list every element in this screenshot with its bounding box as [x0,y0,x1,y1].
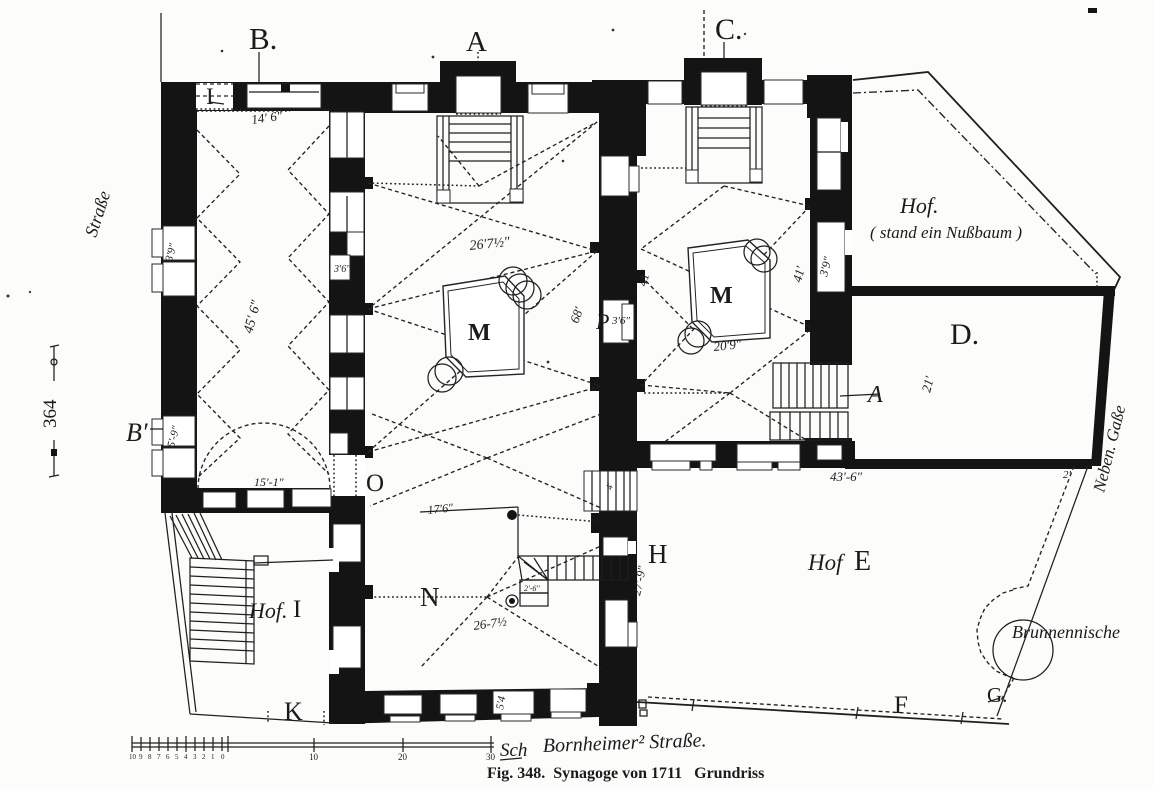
svg-text:3′6″: 3′6″ [333,264,351,275]
svg-text:20: 20 [398,752,408,762]
svg-text:Sch: Sch [500,740,527,761]
svg-text:D.: D. [950,318,979,351]
svg-text:F: F [894,692,908,719]
svg-text:I: I [293,596,301,623]
svg-text:O: O [366,470,384,497]
svg-text:H: H [648,539,668,569]
svg-text:9: 9 [139,753,143,761]
svg-text:6: 6 [166,753,170,761]
svg-text:5′4: 5′4 [494,695,508,711]
svg-text:5: 5 [175,753,179,761]
svg-text:Hof.: Hof. [899,193,939,218]
svg-text:1: 1 [211,753,215,761]
svg-text:P: P [595,309,609,334]
svg-text:43′-6″: 43′-6″ [830,469,863,484]
svg-text:M: M [710,283,733,309]
svg-text:A: A [466,26,487,58]
svg-text:3: 3 [193,753,197,761]
svg-text:C.: C. [715,13,743,46]
svg-text:B′: B′ [126,418,148,447]
svg-text:10: 10 [309,752,319,762]
svg-text:7: 7 [157,753,161,761]
svg-text:3′6″: 3′6″ [611,315,630,327]
svg-text:K: K [284,697,303,726]
svg-text:M: M [468,320,491,346]
svg-text:B.: B. [249,21,277,56]
svg-text:364: 364 [40,399,61,428]
svg-text:2′-6″: 2′-6″ [524,584,540,593]
svg-text:G.: G. [987,683,1007,707]
svg-text:N: N [420,582,440,612]
svg-text:2′: 2′ [1063,469,1072,481]
svg-text:E: E [854,546,871,577]
svg-text:Brunnennische: Brunnennische [1012,622,1120,642]
svg-text:20′9″: 20′9″ [713,336,743,354]
svg-text:4: 4 [184,753,188,761]
svg-text:2: 2 [202,753,206,761]
svg-text:A: A [866,382,883,408]
svg-text:30: 30 [486,752,496,762]
svg-text:15′-1″: 15′-1″ [254,475,285,489]
svg-text:I: I [206,84,214,109]
svg-text:0: 0 [221,753,225,761]
svg-text:Hof: Hof [807,550,846,575]
svg-text:8: 8 [148,753,152,761]
svg-text:( stand ein Nußbaum ): ( stand ein Nußbaum ) [870,223,1022,242]
svg-text:17′6″: 17′6″ [427,500,455,517]
svg-text:Hof.: Hof. [248,598,288,623]
svg-text:10: 10 [129,753,137,761]
svg-text:Fig. 348. Synagoge von 1711: Fig. 348. Synagoge von 1711 Grundriss [487,765,764,782]
